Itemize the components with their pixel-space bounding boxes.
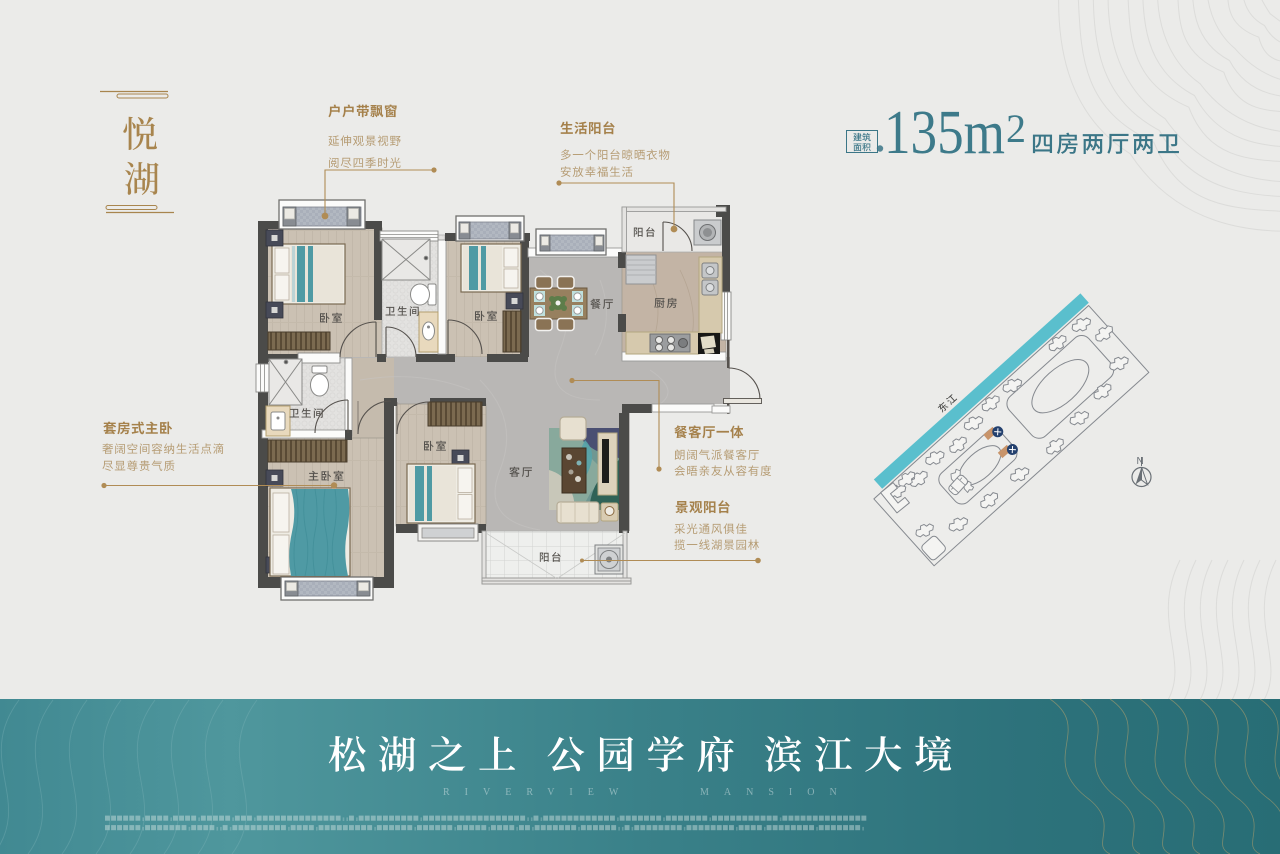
svg-text:135m: 135m [884, 99, 1005, 167]
svg-text:N: N [1137, 456, 1144, 467]
svg-text:MANSION: MANSION [700, 787, 852, 798]
svg-text:2: 2 [1006, 106, 1026, 151]
svg-text:RIVERVIEW: RIVERVIEW [443, 787, 633, 798]
